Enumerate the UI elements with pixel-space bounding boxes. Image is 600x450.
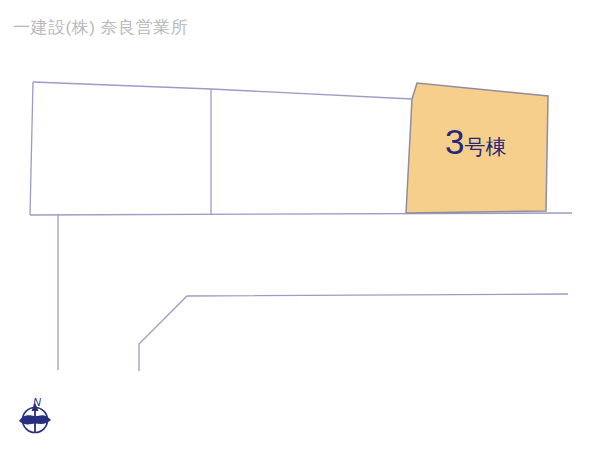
compass-north-label: N (33, 396, 41, 408)
plot-boundary-left (30, 82, 33, 215)
road-edge-lower (139, 294, 568, 371)
site-plan-page: 一建設(株) 奈良営業所 N 3号棟 (0, 0, 600, 450)
plot-number: 3 (445, 122, 464, 161)
plot-map: N (0, 0, 600, 450)
plot-number-suffix: 号棟 (464, 135, 506, 158)
compass-icon: N (19, 396, 51, 433)
road-edge-upper (30, 213, 572, 215)
highlighted-plot-label: 3号棟 (445, 124, 506, 159)
plot-boundary-top (33, 82, 412, 99)
